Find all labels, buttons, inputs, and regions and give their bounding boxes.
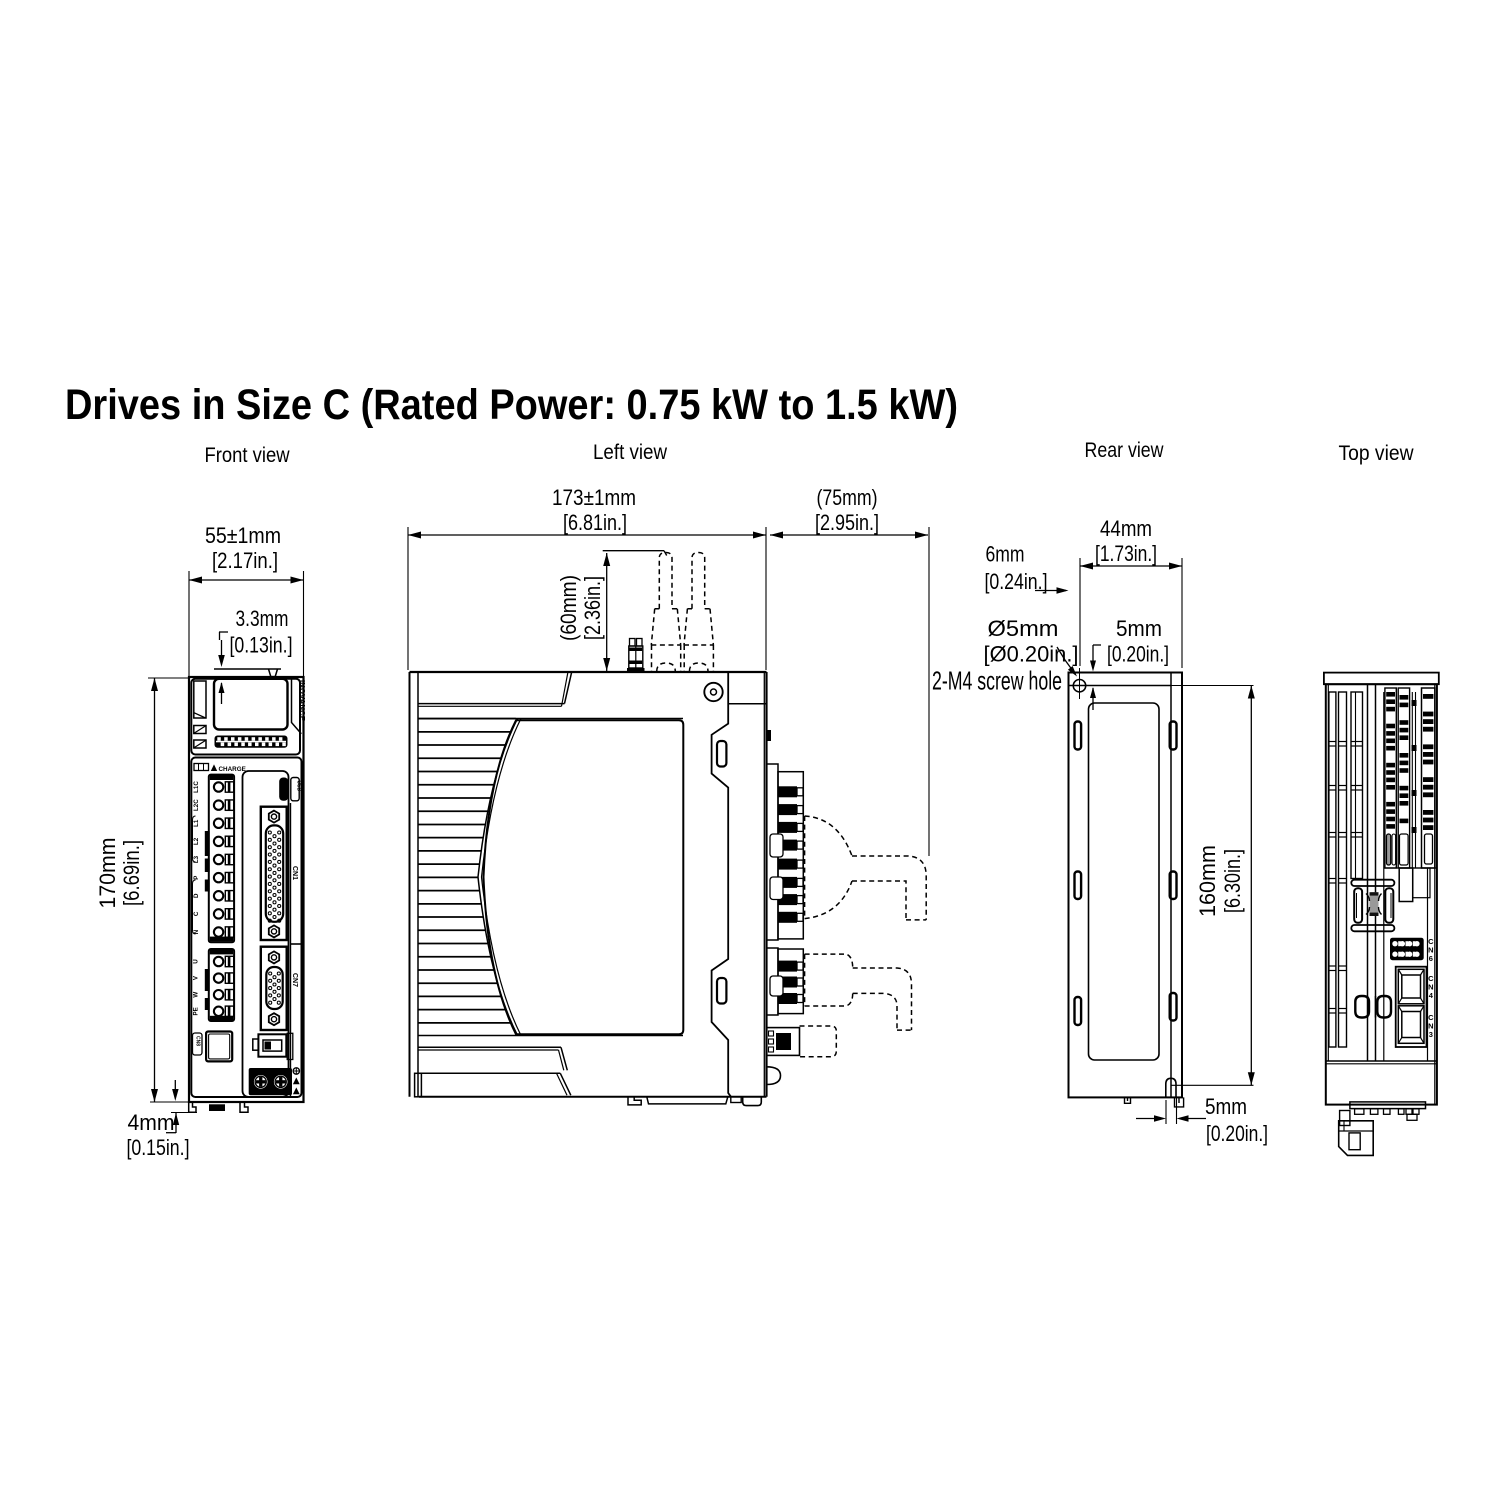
svg-text:[6.30in.]: [6.30in.] bbox=[1220, 849, 1245, 913]
svg-text:D: D bbox=[193, 893, 200, 898]
svg-text:L1C: L1C bbox=[193, 781, 200, 793]
svg-text:[0.20in.]: [0.20in.] bbox=[1107, 642, 1169, 667]
svg-text:[2.17in.]: [2.17in.] bbox=[212, 548, 278, 573]
svg-text:Rear view: Rear view bbox=[1085, 439, 1165, 462]
svg-text:[6.69in.]: [6.69in.] bbox=[119, 840, 144, 906]
svg-text:[6.81in.]: [6.81in.] bbox=[563, 510, 627, 535]
svg-text:[0.15in.]: [0.15in.] bbox=[127, 1135, 190, 1160]
svg-text:CHARGE: CHARGE bbox=[219, 766, 246, 773]
svg-text:CN7: CN7 bbox=[291, 973, 298, 987]
svg-text:P: P bbox=[193, 876, 200, 880]
svg-text:INOVANCE: INOVANCE bbox=[298, 680, 307, 721]
svg-text:[Ø0.20in.]: [Ø0.20in.] bbox=[984, 642, 1079, 667]
svg-text:W: W bbox=[193, 992, 200, 998]
svg-text:CN1: CN1 bbox=[291, 866, 298, 880]
svg-text:[1.73in.]: [1.73in.] bbox=[1095, 541, 1157, 566]
svg-text:6: 6 bbox=[1429, 954, 1433, 963]
svg-text:(60mm): (60mm) bbox=[556, 575, 581, 641]
svg-text:L2C: L2C bbox=[193, 799, 200, 811]
svg-text:PE: PE bbox=[193, 1007, 200, 1015]
svg-text:170mm: 170mm bbox=[95, 838, 120, 909]
svg-text:5mm: 5mm bbox=[1116, 616, 1162, 641]
svg-text:3.3mm: 3.3mm bbox=[236, 606, 289, 631]
svg-text:44mm: 44mm bbox=[1100, 516, 1152, 541]
svg-text:3: 3 bbox=[1429, 1030, 1433, 1039]
svg-text:USB: USB bbox=[296, 781, 302, 792]
svg-text:C: C bbox=[193, 911, 200, 916]
svg-text:5mm: 5mm bbox=[1205, 1094, 1247, 1119]
svg-text:Left view: Left view bbox=[593, 441, 668, 464]
svg-text:L2: L2 bbox=[193, 837, 200, 845]
svg-text:[0.13in.]: [0.13in.] bbox=[230, 633, 293, 658]
svg-text:4mm: 4mm bbox=[128, 1110, 175, 1135]
svg-text:(75mm): (75mm) bbox=[817, 485, 878, 510]
svg-text:Front view: Front view bbox=[205, 444, 291, 467]
svg-text:2-M4 screw hole: 2-M4 screw hole bbox=[932, 666, 1062, 696]
svg-text:[0.20in.]: [0.20in.] bbox=[1206, 1121, 1268, 1146]
svg-text:[2.95in.]: [2.95in.] bbox=[815, 510, 879, 535]
svg-text:Ø5mm: Ø5mm bbox=[988, 616, 1059, 641]
svg-text:U: U bbox=[193, 959, 200, 964]
svg-text:55±1mm: 55±1mm bbox=[205, 523, 281, 548]
svg-text:6mm: 6mm bbox=[986, 542, 1025, 567]
svg-text:[2.36in.]: [2.36in.] bbox=[580, 576, 605, 640]
svg-text:160mm: 160mm bbox=[1195, 845, 1220, 917]
svg-text:Drives in Size C (Rated Power:: Drives in Size C (Rated Power: 0.75 kW t… bbox=[65, 381, 958, 429]
svg-text:CN8: CN8 bbox=[195, 1036, 201, 1046]
svg-text:Top view: Top view bbox=[1339, 442, 1415, 465]
svg-text:L1: L1 bbox=[193, 819, 200, 827]
svg-text:173±1mm: 173±1mm bbox=[552, 485, 636, 510]
